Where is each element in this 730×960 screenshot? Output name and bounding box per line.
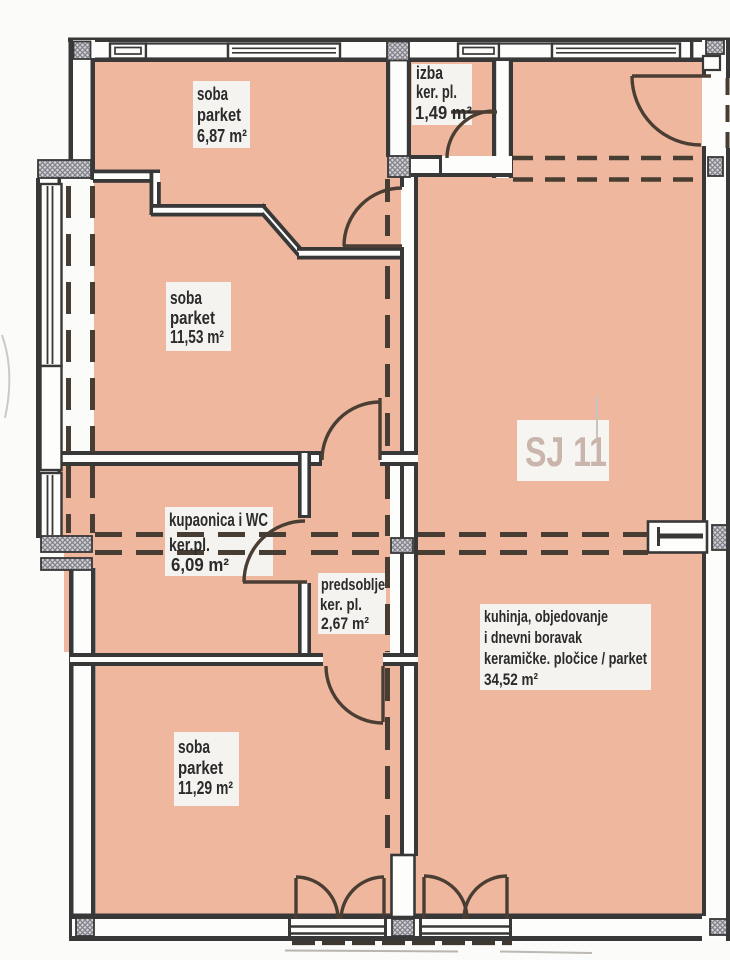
svg-text:keramičke. pločice / parket: keramičke. pločice / parket bbox=[484, 649, 647, 668]
svg-text:kuhinja, objedovanje: kuhinja, objedovanje bbox=[484, 607, 608, 626]
svg-text:34,52 m²: 34,52 m² bbox=[484, 670, 538, 689]
svg-text:11,29 m²: 11,29 m² bbox=[178, 778, 233, 798]
svg-text:SJ 11: SJ 11 bbox=[525, 428, 607, 475]
svg-text:1,49 m²: 1,49 m² bbox=[415, 103, 472, 123]
svg-text:soba: soba bbox=[170, 288, 203, 308]
svg-text:izba: izba bbox=[416, 63, 444, 83]
svg-text:ker. pl.: ker. pl. bbox=[416, 82, 457, 102]
svg-text:2,67 m²: 2,67 m² bbox=[321, 614, 369, 633]
svg-text:soba: soba bbox=[178, 737, 211, 757]
svg-text:parket: parket bbox=[170, 308, 215, 328]
svg-text:6,09 m²: 6,09 m² bbox=[171, 555, 229, 575]
svg-text:parket: parket bbox=[178, 758, 223, 778]
svg-text:predsoblje: predsoblje bbox=[321, 575, 385, 594]
svg-text:i dnevni boravak: i dnevni boravak bbox=[484, 628, 582, 647]
svg-text:6,87 m²: 6,87 m² bbox=[197, 126, 247, 146]
svg-text:kupaonica i WC: kupaonica i WC bbox=[169, 510, 268, 530]
svg-text:soba: soba bbox=[197, 84, 229, 104]
svg-text:ker. pl.: ker. pl. bbox=[320, 595, 362, 614]
svg-text:ker.pl.: ker.pl. bbox=[169, 535, 210, 555]
svg-text:parket: parket bbox=[197, 105, 241, 125]
svg-text:11,53 m²: 11,53 m² bbox=[170, 327, 224, 347]
